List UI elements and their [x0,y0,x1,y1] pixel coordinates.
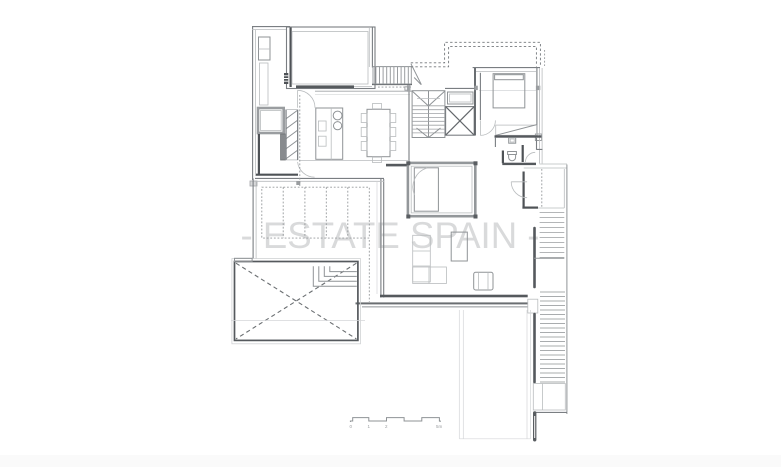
svg-text:- ESTATE SPAIN -: - ESTATE SPAIN - [241,214,540,256]
svg-text:5m: 5m [436,424,443,429]
